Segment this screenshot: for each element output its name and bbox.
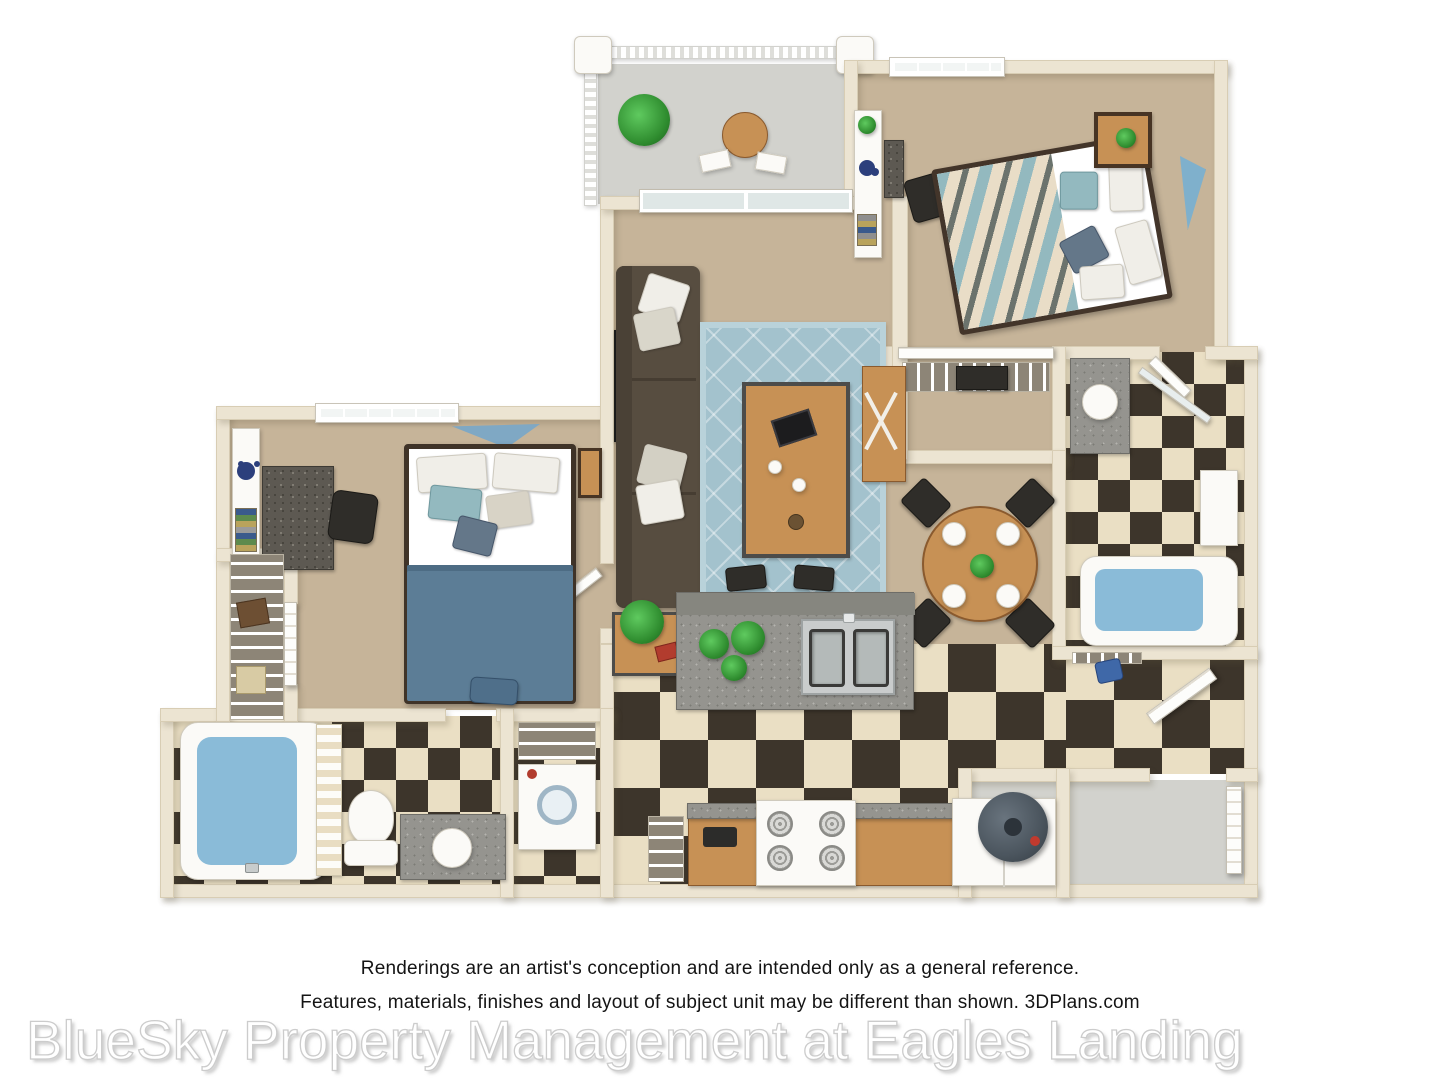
bedroom2-shelf-books (857, 214, 877, 246)
bedroom1-mickey-decor (237, 462, 255, 480)
washer-door (537, 785, 577, 825)
kitchen-island (676, 592, 914, 710)
stove-burner-3 (767, 845, 793, 871)
wall-bedroom1-left (216, 406, 230, 722)
coffee-table-cup-1 (768, 460, 782, 474)
coffee-table (742, 382, 850, 558)
coffee-table-bowl (788, 514, 804, 530)
bathroom1-tub (180, 722, 328, 880)
wall-bathroom2-top (1205, 346, 1258, 360)
sliding-glass-door (640, 190, 852, 212)
sofa-back-rest (616, 266, 632, 608)
water-heater-valve (1030, 836, 1040, 846)
shower-curtain (316, 724, 342, 876)
closet2-hanging-clothes (956, 366, 1008, 390)
bathroom2-tub (1080, 556, 1238, 646)
bedroom1-nightstand (578, 448, 602, 498)
island-plant-leaf-3 (721, 655, 747, 681)
tv-console (862, 366, 906, 482)
wall-water-heater-right (1056, 768, 1070, 898)
toilet (348, 790, 394, 846)
wall-right-perimeter (1244, 346, 1258, 898)
sink-basin-left (809, 629, 845, 687)
wall-bedroom2-right (1214, 60, 1228, 360)
closet1-basket (236, 666, 266, 694)
island-plant-leaf-2 (731, 621, 765, 655)
closet1-hanging-item (236, 598, 270, 629)
closet1-door (284, 602, 297, 686)
floor-plan-rendering: Renderings are an artist's conception an… (0, 0, 1440, 1080)
washer-dryer (518, 764, 596, 850)
coffee-table-cup-2 (792, 478, 806, 492)
bedroom2-shelf-decor (859, 160, 875, 176)
bedroom2-nightstand-plant (1116, 128, 1136, 148)
closet1-shelving (230, 554, 284, 720)
bedroom1-ottoman (469, 676, 519, 705)
wall-living-left-a (600, 196, 614, 564)
bar-stool-1 (725, 564, 767, 592)
wall-laundry-right (600, 708, 614, 898)
end-table-plant (620, 600, 664, 644)
water-heater-cap (1004, 818, 1022, 836)
bathroom1-tub-faucet (245, 863, 259, 873)
bedroom2-shelf-plant (858, 116, 876, 134)
bathroom1-sink (432, 828, 472, 868)
closet2-sliding-door (898, 347, 1054, 359)
wall-dining-east (1052, 450, 1066, 660)
washer-dial (527, 769, 537, 779)
bedroom2-pillow-white-3 (1079, 264, 1125, 301)
bedroom2-window (890, 58, 1004, 76)
stove-burner-1 (767, 811, 793, 837)
bathroom2-tub-water (1095, 569, 1203, 631)
wall-closet1-right-b (284, 684, 298, 722)
bedroom1-desk-chair (327, 489, 380, 545)
sliding-glass-door-mullion (744, 193, 748, 209)
bedroom1-pillow-white-2 (492, 452, 561, 494)
bedroom2-desk (884, 140, 904, 198)
dining-plate-3 (942, 584, 966, 608)
bedroom2-bed-comforter (937, 154, 1079, 330)
kitchen-small-appliance (703, 827, 737, 847)
disclaimer-line-1: Renderings are an artist's conception an… (0, 958, 1440, 980)
balcony-column-left (574, 36, 612, 74)
patio-storage-door (1226, 786, 1242, 874)
wall-closet2-right (1052, 346, 1066, 464)
bedroom2-pillow-teal (1060, 172, 1098, 210)
laundry-shelf (518, 722, 596, 760)
double-sink-frame (801, 619, 895, 695)
wall-bottom-perimeter (160, 884, 1258, 898)
balcony-palm-plant (618, 94, 670, 146)
sofa-pillow-4 (635, 478, 685, 525)
sofa-cushion-divider-1 (632, 378, 696, 381)
dining-table (922, 506, 1038, 622)
sink-basin-right (853, 629, 889, 687)
toilet-tank (344, 840, 398, 866)
coffee-table-tablet (771, 409, 818, 448)
sink-faucet (843, 613, 855, 623)
water-heater (978, 792, 1048, 862)
stove-burner-2 (819, 811, 845, 837)
balcony-bistro-table (722, 112, 768, 158)
wall-closet2-bottom (884, 450, 1066, 464)
balcony-railing-top (584, 46, 856, 59)
wall-entry-patio-a (958, 768, 1150, 782)
stove-burner-4 (819, 845, 845, 871)
patio-storage-floor (1068, 780, 1246, 886)
dining-plate-2 (996, 522, 1020, 546)
wall-bathroom1-top-a (160, 708, 446, 722)
island-counter-edge (677, 593, 915, 615)
dining-centerpiece-plant (970, 554, 994, 578)
sofa (616, 266, 700, 608)
kitchen-stove (756, 800, 856, 886)
bedroom1-window (316, 404, 458, 422)
bedroom1-shelf-books (235, 508, 257, 552)
bedroom1-bed (404, 444, 576, 704)
dining-plate-4 (996, 584, 1020, 608)
sofa-pillow-2 (633, 306, 682, 352)
island-plant-leaf-1 (699, 629, 729, 659)
wall-entry-patio-b (1226, 768, 1258, 782)
bathroom2-cabinet (1200, 470, 1238, 546)
bathroom1-tub-water (197, 737, 297, 865)
bathroom2-sink (1082, 384, 1118, 420)
bar-stool-2 (793, 564, 835, 591)
watermark-text: BlueSky Property Management at Eagles La… (26, 1008, 1243, 1072)
wall-bathroom1-left (160, 708, 174, 898)
dining-plate-1 (942, 522, 966, 546)
kitchen-pantry-rack (648, 816, 684, 882)
